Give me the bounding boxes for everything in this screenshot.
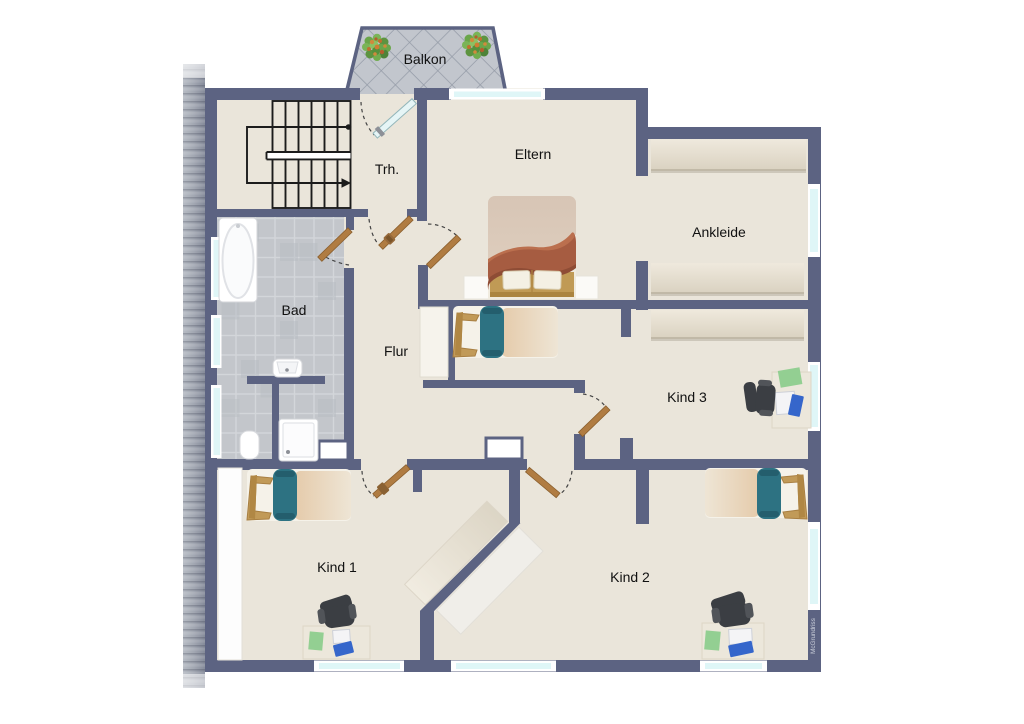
svg-text:Balkon: Balkon [404, 51, 447, 67]
svg-text:McGrundriss: McGrundriss [810, 618, 817, 654]
svg-text:Ankleide: Ankleide [692, 224, 746, 240]
svg-text:Trh.: Trh. [375, 161, 399, 177]
svg-text:Kind 3: Kind 3 [667, 389, 707, 405]
svg-text:Kind 2: Kind 2 [610, 569, 650, 585]
svg-text:Eltern: Eltern [515, 146, 552, 162]
svg-text:Flur: Flur [384, 343, 408, 359]
svg-text:Kind 1: Kind 1 [317, 559, 357, 575]
svg-text:Bad: Bad [282, 302, 307, 318]
